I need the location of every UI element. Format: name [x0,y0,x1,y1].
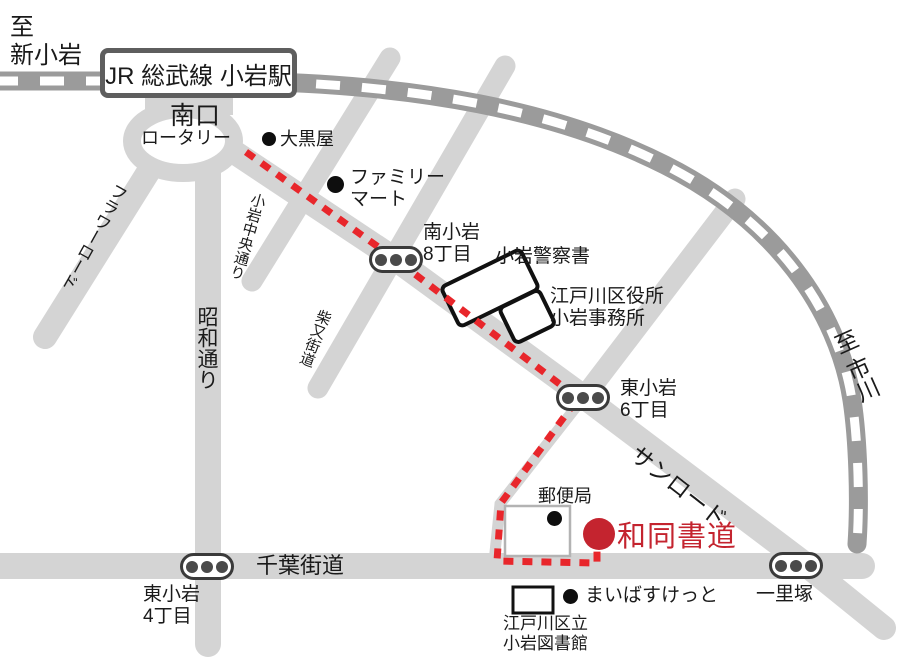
road-label-showa-dori: 昭和通り [196,306,217,390]
landmark-my-basket: まいばすけっと [585,585,718,607]
destination-marker-icon [583,518,615,550]
signal-dot-icon [592,392,604,404]
direction-to-shin-koiwa: 至 新小岩 [10,14,82,71]
station-box: JR 総武線 小岩駅 [100,48,297,98]
signal-dot-icon [405,254,417,266]
landmark-daikokuya: 大黒屋 [280,129,334,150]
my-basket-dot-icon [563,589,578,604]
signal-dot-icon [186,561,198,573]
traffic-light-higashi-koiwa-4 [180,553,234,580]
signal-dot-icon [375,254,387,266]
signal-dot-icon [390,254,402,266]
signal-dot-icon [805,560,817,572]
signal-dot-icon [216,561,228,573]
signal-label-ichirizuka: 一里塚 [756,584,813,606]
rotary-label: ロータリー [141,128,231,149]
library-building [513,587,553,613]
landmark-police-station: 小岩警察書 [495,246,590,268]
landmark-ward-office: 江戸川区役所 小岩事務所 [550,286,664,331]
signal-dot-icon [201,561,213,573]
road-flower [45,166,152,337]
family-mart-dot-icon [327,176,344,193]
destination-label: 和同書道 [617,513,737,555]
daikokuya-dot-icon [262,132,276,146]
signal-label-higashi-koiwa-4: 東小岩 4丁目 [143,584,200,629]
signal-dot-icon [562,392,574,404]
signal-label-higashi-koiwa-6: 東小岩 6丁目 [620,378,677,423]
traffic-light-minami-koiwa-8 [369,246,423,273]
landmark-family-mart: ファミリー マート [350,167,445,212]
landmark-post-office: 郵便局 [538,486,592,507]
signal-dot-icon [775,560,787,572]
signal-dot-icon [790,560,802,572]
route-map: 至 新小岩 JR 総武線 小岩駅 南口 ロータリー 至 市川 フラワーロード 昭… [0,0,905,667]
road-label-chiba-kaido: 千葉街道 [256,553,344,579]
traffic-light-higashi-koiwa-6 [556,384,610,411]
station-name: JR 総武線 小岩駅 [105,56,292,91]
traffic-light-ichirizuka [769,552,823,579]
post-office-dot-icon [547,511,562,526]
landmark-library: 江戸川区立 小岩図書館 [503,614,588,654]
signal-dot-icon [577,392,589,404]
signal-label-minami-koiwa-8: 南小岩 8丁目 [423,222,480,267]
